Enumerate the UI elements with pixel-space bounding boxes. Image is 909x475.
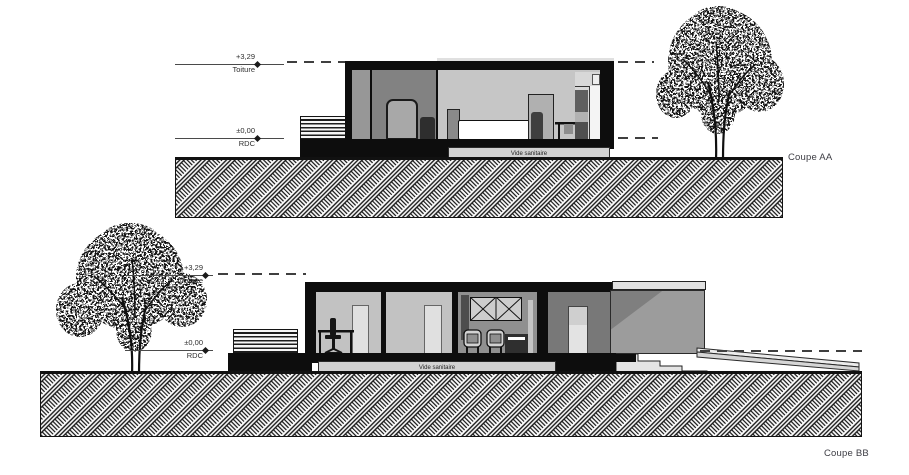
cabinet-top-door [592, 74, 600, 85]
ground-hatch [40, 371, 862, 437]
tree [648, 2, 790, 160]
chair-silhouette [531, 112, 543, 140]
level-marker-diamond [254, 135, 261, 142]
elevation-drawing: +3,29 Toiture ±0,00 RDC [0, 0, 909, 475]
ground-hatch [175, 157, 783, 218]
roof-slab [305, 282, 612, 292]
door-panel [424, 305, 442, 355]
level-label: Toiture [145, 277, 203, 285]
cabinet-box [575, 112, 588, 122]
far-roof-edge [612, 281, 706, 290]
section-label: Coupe AA [788, 152, 832, 163]
post [370, 70, 372, 140]
level-line [175, 138, 284, 139]
cabinet-box [575, 90, 588, 112]
wall-cut [305, 282, 316, 355]
level-marker-diamond [254, 61, 261, 68]
pillar [528, 300, 533, 355]
dining-chairs [463, 328, 509, 355]
level-label: Toiture [197, 66, 255, 74]
shadow-wedge [611, 291, 704, 353]
dashed-line [287, 61, 345, 63]
wall-cut [345, 61, 352, 141]
level-line [175, 64, 284, 65]
crawl-space-label: Vide sanitaire [419, 365, 455, 371]
sideboard-slot [508, 337, 525, 340]
armchair [386, 99, 418, 140]
cabinet-box [575, 122, 588, 140]
cabinet-door [589, 86, 600, 140]
level-label: RDC [145, 352, 203, 360]
crawl-space-label: Vide sanitaire [511, 151, 547, 157]
side-chair [420, 117, 435, 140]
dashed-line [700, 350, 862, 352]
wall-cut [600, 61, 614, 149]
door-glazing [569, 307, 587, 325]
level-value: ±0,00 [197, 127, 255, 135]
level-value: +3,29 [197, 53, 255, 61]
dashed-line [218, 273, 306, 275]
far-wall-elevation [610, 290, 705, 354]
window-cross [470, 297, 522, 321]
glass-wall [436, 70, 438, 140]
level-value: ±0,00 [145, 339, 203, 347]
level-label: RDC [197, 140, 255, 148]
interior-wall [381, 292, 386, 355]
bed [458, 120, 530, 140]
desk-office-chair [317, 315, 357, 355]
roof-slab [345, 61, 614, 70]
level-value: +3,29 [145, 264, 203, 272]
louver-screen [233, 329, 298, 356]
section-label: Coupe BB [824, 448, 869, 459]
door-panel [568, 306, 588, 355]
terrace-slab [228, 353, 312, 372]
floor-mass [548, 353, 616, 372]
